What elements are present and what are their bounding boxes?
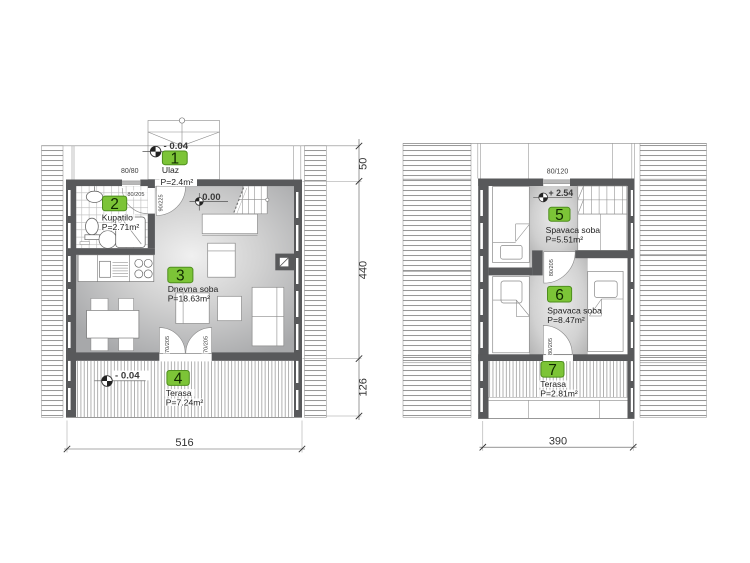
svg-text:0.00: 0.00 (202, 191, 220, 202)
svg-text:7: 7 (548, 362, 557, 379)
svg-text:Dnevna soba: Dnevna soba (168, 284, 219, 294)
svg-text:80/205: 80/205 (127, 192, 144, 198)
svg-text:2: 2 (110, 196, 119, 213)
svg-text:- 0.04: - 0.04 (115, 371, 140, 382)
svg-text:80/205: 80/205 (549, 259, 555, 276)
svg-text:80/120: 80/120 (547, 169, 569, 176)
svg-text:Spavaca soba: Spavaca soba (547, 306, 602, 316)
svg-text:P=2.4m²: P=2.4m² (161, 177, 194, 187)
svg-text:6: 6 (555, 287, 564, 304)
svg-text:P=5.51m²: P=5.51m² (546, 234, 584, 244)
svg-text:P=2.71m²: P=2.71m² (102, 222, 140, 232)
svg-text:80/80: 80/80 (121, 168, 139, 175)
svg-text:90/225: 90/225 (158, 194, 164, 211)
svg-text:Ulaz: Ulaz (162, 165, 179, 175)
svg-text:P=2.81m²: P=2.81m² (540, 389, 578, 399)
svg-text:3: 3 (176, 268, 185, 285)
svg-text:440: 440 (358, 261, 370, 279)
svg-text:50: 50 (358, 158, 370, 170)
svg-text:4: 4 (174, 371, 183, 388)
svg-text:70/205: 70/205 (203, 336, 209, 353)
svg-text:+ 2.54: + 2.54 (549, 188, 574, 198)
svg-text:80/205: 80/205 (548, 338, 554, 355)
svg-text:126: 126 (358, 378, 370, 396)
svg-text:P=8.47m²: P=8.47m² (547, 315, 585, 325)
svg-text:5: 5 (555, 207, 564, 224)
svg-text:P=7.24m²: P=7.24m² (166, 397, 204, 407)
svg-text:390: 390 (549, 435, 567, 447)
svg-text:Kupatilo: Kupatilo (102, 212, 133, 222)
svg-text:70/205: 70/205 (165, 336, 171, 353)
svg-text:P=18.63m²: P=18.63m² (168, 294, 210, 304)
svg-text:Spavaca soba: Spavaca soba (546, 225, 601, 235)
svg-text:516: 516 (175, 437, 193, 449)
